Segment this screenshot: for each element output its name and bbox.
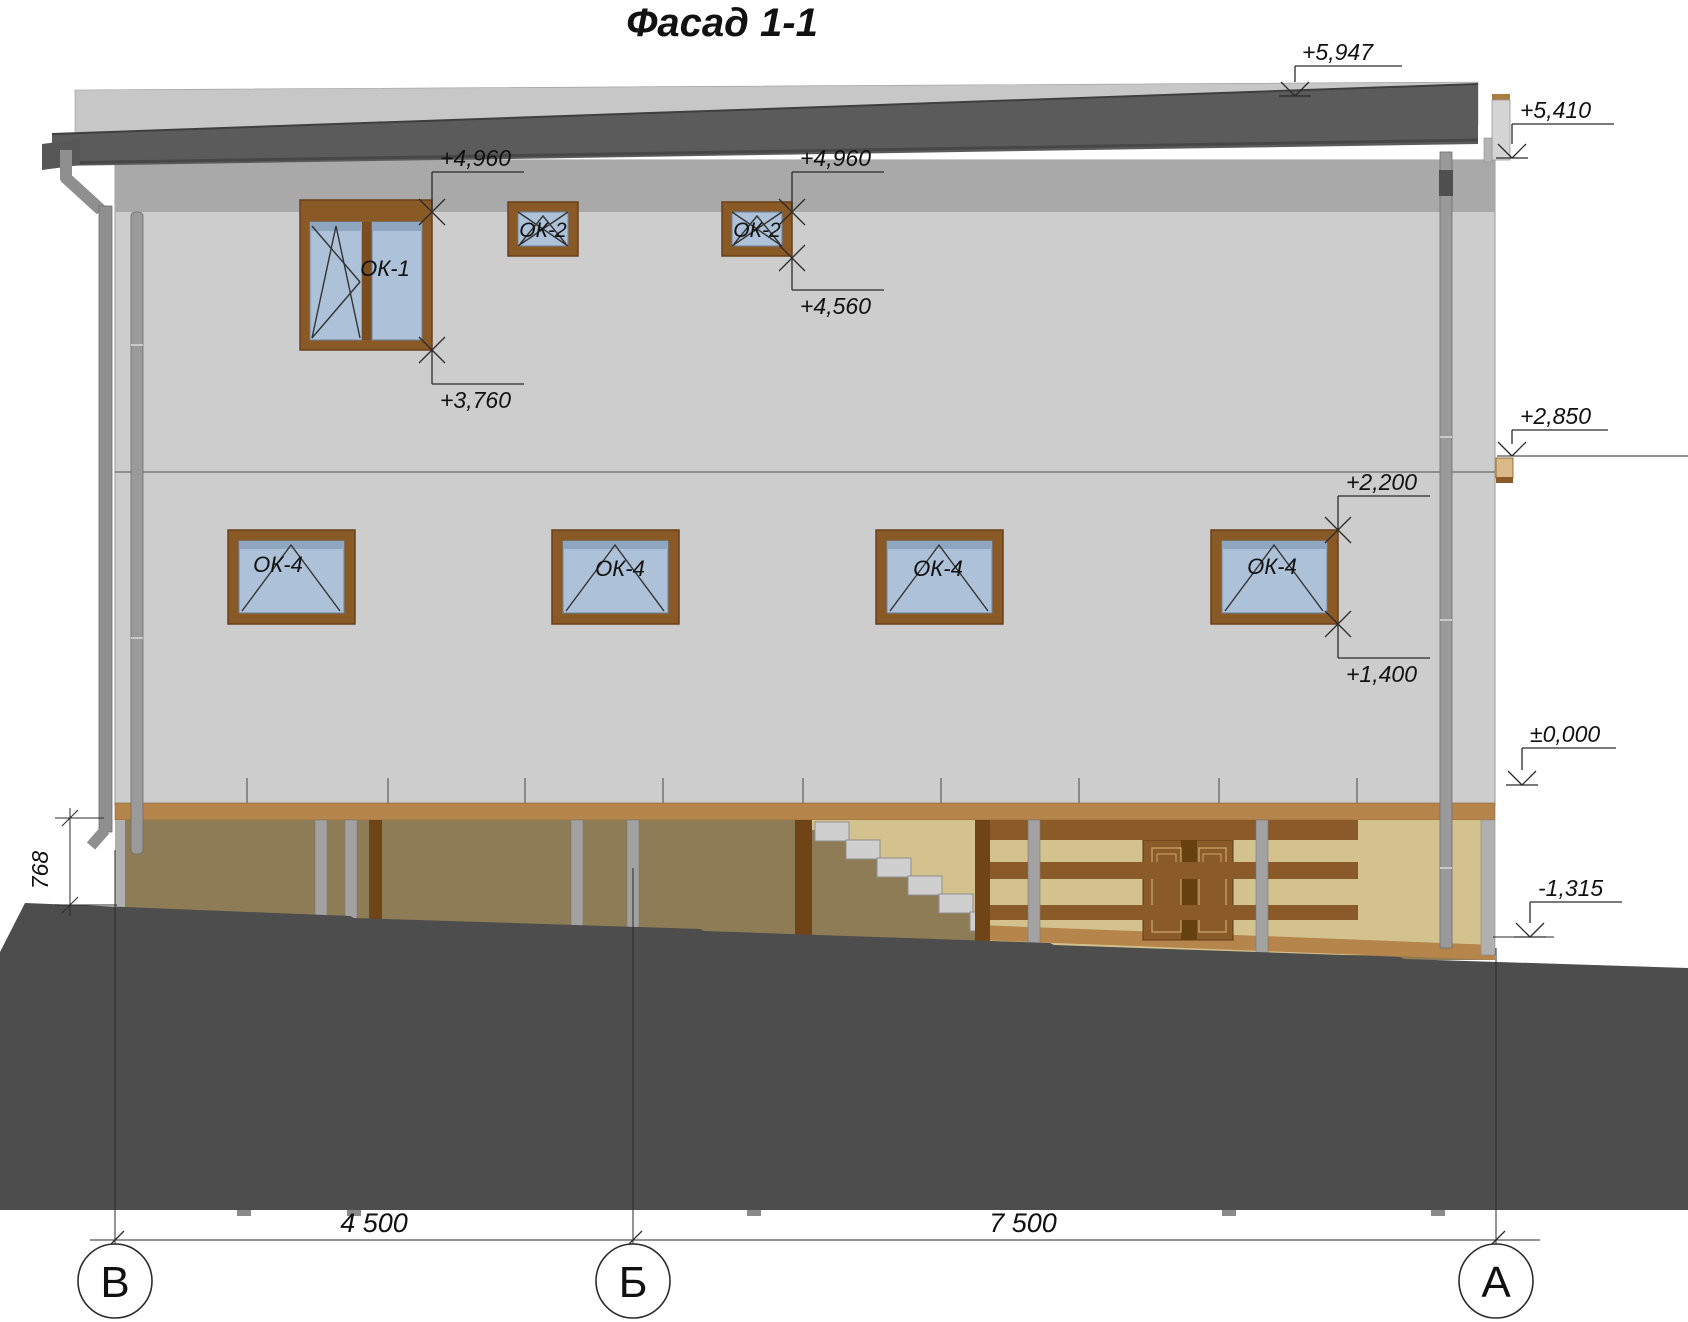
window-ok2-left: ОК-2 — [508, 202, 578, 256]
downpipe-right-vent — [1439, 170, 1453, 196]
downpipe-left-outer — [99, 206, 112, 832]
window-ok4-4: ОК-4 — [1211, 530, 1338, 624]
window-ok4-2: ОК-4 — [552, 530, 679, 624]
slab-band — [115, 803, 1495, 820]
elevation-mark-basement: -1,315 — [1493, 875, 1622, 937]
window-ok2-label: ОК-2 — [519, 219, 567, 242]
facade-elevation-svg: ОК-1 ОК-2 ОК-2 ОК-4 ОК- — [0, 0, 1688, 1322]
dimension-text-7500: 7 500 — [989, 1208, 1057, 1238]
window-ok1-label: ОК-1 — [360, 256, 410, 281]
elevation-text: +4,560 — [800, 293, 871, 319]
elevation-text: +3,760 — [440, 387, 511, 413]
window-ok4-label: ОК-4 — [1247, 554, 1297, 579]
elevation-text: +4,960 — [440, 145, 511, 171]
window-ok4-label: ОК-4 — [913, 556, 963, 581]
downpipe-left-outlet — [91, 830, 105, 846]
drawing-title: Фасад 1-1 — [626, 1, 818, 45]
elevation-text: ±0,000 — [1530, 721, 1600, 747]
axis-bubble-b: Б — [596, 1244, 670, 1318]
axis-letter: В — [100, 1258, 129, 1307]
elevation-text: +5,410 — [1520, 97, 1591, 123]
window-ok4-3: ОК-4 — [876, 530, 1003, 624]
elevation-text: +2,850 — [1520, 403, 1591, 429]
roof — [42, 82, 1510, 170]
downpipe-left-inner — [131, 212, 143, 854]
basement-door — [1143, 840, 1233, 940]
window-ok4-1: ОК-4 — [228, 530, 355, 624]
elevation-text: +1,400 — [1346, 661, 1417, 687]
facade-drawing-sheet: ОК-1 ОК-2 ОК-2 ОК-4 ОК- — [0, 0, 1688, 1322]
dimension-text-4500: 4 500 — [340, 1208, 408, 1238]
elevation-mark-roof-edge: +5,410 — [1496, 97, 1614, 158]
axis-bubble-a: А — [1459, 1244, 1533, 1318]
elevation-mark-canopy: +2,850 — [1497, 403, 1688, 456]
fascia-bracket — [1484, 138, 1492, 162]
ground-base-ticks — [237, 1210, 1445, 1216]
axis-bubble-v: В — [78, 1244, 152, 1318]
elevation-mark-ground-floor: ±0,000 — [1506, 721, 1616, 785]
elevation-text: +4,960 — [800, 145, 871, 171]
axis-letter: А — [1481, 1258, 1511, 1307]
dimension-text-768: 768 — [27, 851, 53, 890]
elevation-text: +2,200 — [1346, 469, 1417, 495]
window-ok1: ОК-1 — [300, 200, 432, 350]
axis-letter: Б — [619, 1258, 648, 1307]
window-ok4-label: ОК-4 — [253, 552, 303, 577]
canopy-beam-end — [1496, 458, 1513, 483]
window-ok4-label: ОК-4 — [595, 556, 645, 581]
elevation-text: +5,947 — [1302, 39, 1374, 65]
downpipe-right — [1440, 152, 1452, 948]
right-fascia — [1492, 100, 1510, 160]
elevation-text: -1,315 — [1538, 875, 1603, 901]
window-ok2-label: ОК-2 — [733, 219, 781, 242]
